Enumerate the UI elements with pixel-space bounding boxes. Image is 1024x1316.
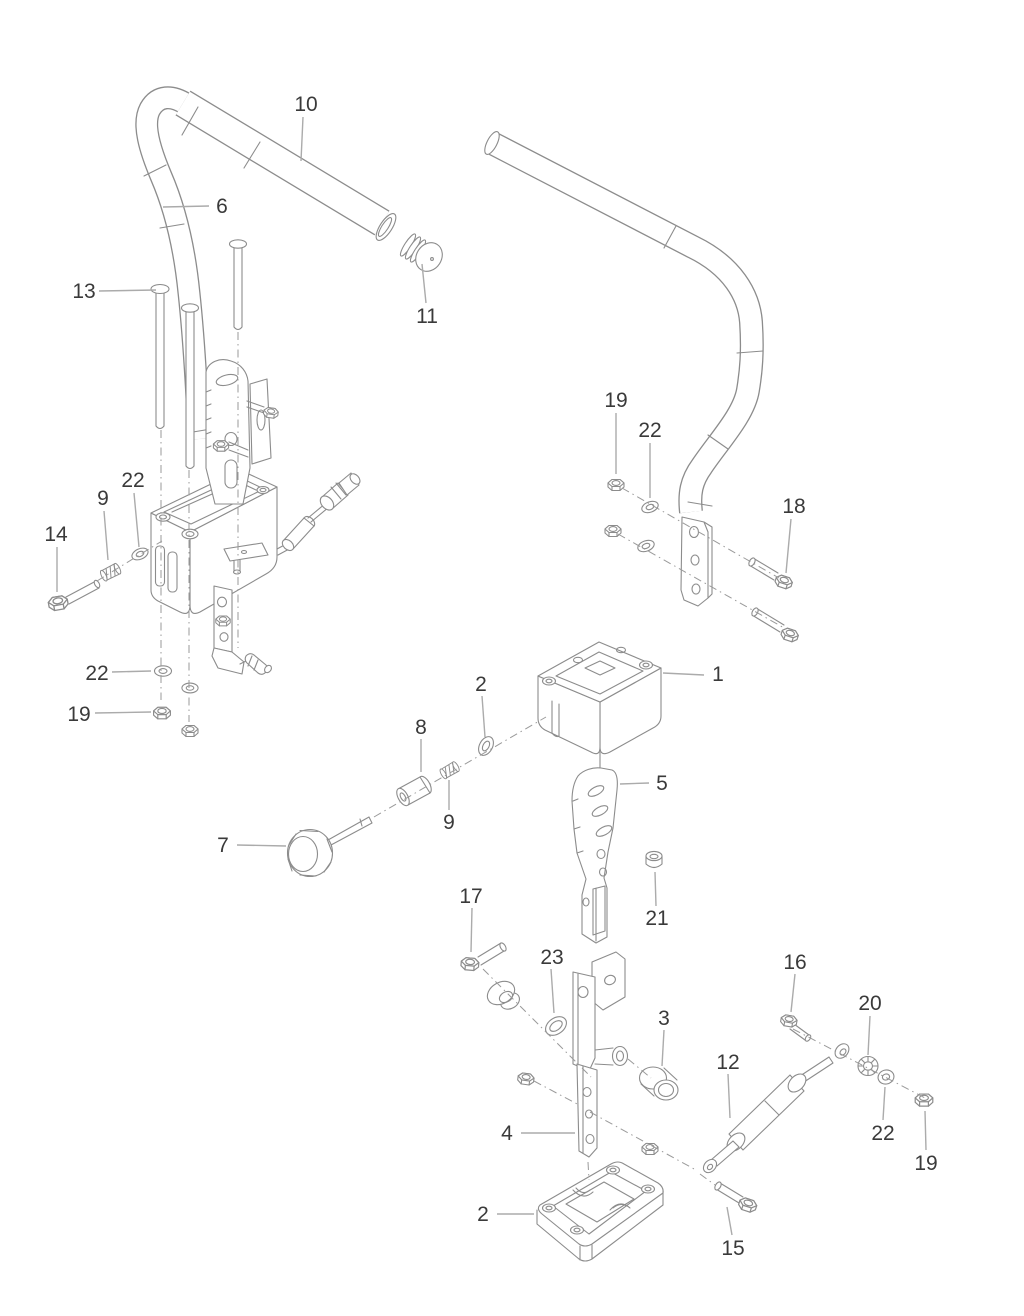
- callout-label-7: 7: [217, 834, 229, 857]
- base-plate-2: [537, 1162, 663, 1261]
- nut-19-bottom: [915, 1094, 933, 1106]
- callout-label-14: 14: [44, 523, 68, 546]
- hardware-below-left-assembly: [154, 666, 198, 737]
- nut-center-lower: [642, 1144, 658, 1155]
- callout-leader-13: [99, 290, 156, 291]
- bolts-18: [748, 557, 800, 643]
- callout-leader-1: [663, 673, 704, 675]
- callout-label-2: 2: [475, 673, 487, 696]
- callout-leader-20: [868, 1016, 870, 1055]
- callout-label-17: 17: [459, 885, 482, 908]
- clamp-block-1: [538, 642, 661, 770]
- callout-label-4: 4: [501, 1122, 513, 1145]
- parts-diagram-page: 1061311192218922142219128952171723342121…: [0, 0, 1024, 1316]
- callout-label-23: 23: [540, 946, 563, 969]
- callout-label-22: 22: [638, 419, 661, 442]
- callout-leader-18: [786, 519, 791, 573]
- callout-leader-9: [104, 511, 108, 560]
- callout-label-22: 22: [121, 469, 144, 492]
- callout-label-22: 22: [85, 662, 108, 685]
- callout-label-20: 20: [858, 992, 881, 1015]
- callout-label-3: 3: [658, 1007, 670, 1030]
- callout-label-10: 10: [294, 93, 317, 116]
- callout-label-1: 1: [712, 663, 724, 686]
- callout-label-9: 9: [97, 487, 109, 510]
- callout-label-15: 15: [721, 1237, 744, 1260]
- control-link-bar-left: [212, 586, 273, 674]
- handlebar-right-bracket: [681, 517, 712, 606]
- pivot-lever-4: [573, 952, 628, 1157]
- spring-9-center: [439, 761, 461, 780]
- callout-leader-23: [551, 969, 554, 1013]
- callout-label-11: 11: [416, 305, 438, 328]
- exploded-view-drawing: 1061311192218922142219128952171723342121…: [0, 0, 1024, 1316]
- cap-nut-21: [646, 851, 662, 867]
- callout-leader-21: [655, 872, 656, 906]
- washer-2-center: [476, 734, 497, 758]
- callout-leader-12: [728, 1074, 730, 1118]
- callout-leader-7: [237, 845, 286, 846]
- callout-leader-17: [471, 908, 472, 952]
- callout-label-19: 19: [914, 1152, 937, 1175]
- control-lever-5: [572, 768, 617, 943]
- callout-label-6: 6: [216, 195, 228, 218]
- callout-label-16: 16: [783, 951, 806, 974]
- flanged-bushing: [483, 977, 522, 1013]
- callout-leader-22: [112, 671, 151, 672]
- callout-label-13: 13: [72, 280, 95, 303]
- callout-leader-22: [883, 1087, 885, 1120]
- cable-assembly-upper-left: [277, 472, 362, 555]
- callout-label-8: 8: [415, 716, 427, 739]
- nut-19-right-pair: [605, 480, 624, 537]
- callout-leader-22: [134, 493, 139, 547]
- spring-9-left: [99, 562, 122, 581]
- handlebar-left: [144, 98, 399, 439]
- bolt-15: [714, 1181, 758, 1214]
- callout-leader-19: [925, 1111, 926, 1150]
- callout-label-2: 2: [477, 1203, 489, 1226]
- plug-3: [640, 1067, 679, 1100]
- retainer-clip-23: [542, 1013, 570, 1039]
- callout-leader-10: [301, 117, 303, 161]
- nut-center-upper: [517, 1072, 534, 1085]
- callout-leader-19: [95, 712, 151, 713]
- callout-leader-3: [662, 1030, 664, 1066]
- bolt-16: [780, 1014, 812, 1042]
- washer-22-bottom: [876, 1068, 895, 1086]
- callout-leader-6: [163, 206, 209, 207]
- handlebar-right: [482, 130, 763, 512]
- callout-label-21: 21: [645, 907, 668, 930]
- callout-leader-2: [482, 696, 485, 737]
- bolt-14: [48, 579, 101, 611]
- callout-label-19: 19: [67, 703, 90, 726]
- washer-22-left-upper: [130, 546, 150, 562]
- callout-label-9: 9: [443, 811, 455, 834]
- spacer-8: [394, 774, 434, 807]
- callout-label-19: 19: [604, 389, 627, 412]
- callout-label-18: 18: [782, 495, 805, 518]
- callout-label-22: 22: [871, 1122, 894, 1145]
- lock-washer-20: [858, 1057, 878, 1076]
- callout-leader-16: [791, 974, 795, 1012]
- callout-label-5: 5: [656, 772, 668, 795]
- callout-leader-15: [727, 1207, 732, 1235]
- callout-label-12: 12: [716, 1051, 739, 1074]
- knob-7: [288, 817, 373, 877]
- bolt-17: [461, 942, 508, 971]
- callout-leader-5: [620, 783, 649, 784]
